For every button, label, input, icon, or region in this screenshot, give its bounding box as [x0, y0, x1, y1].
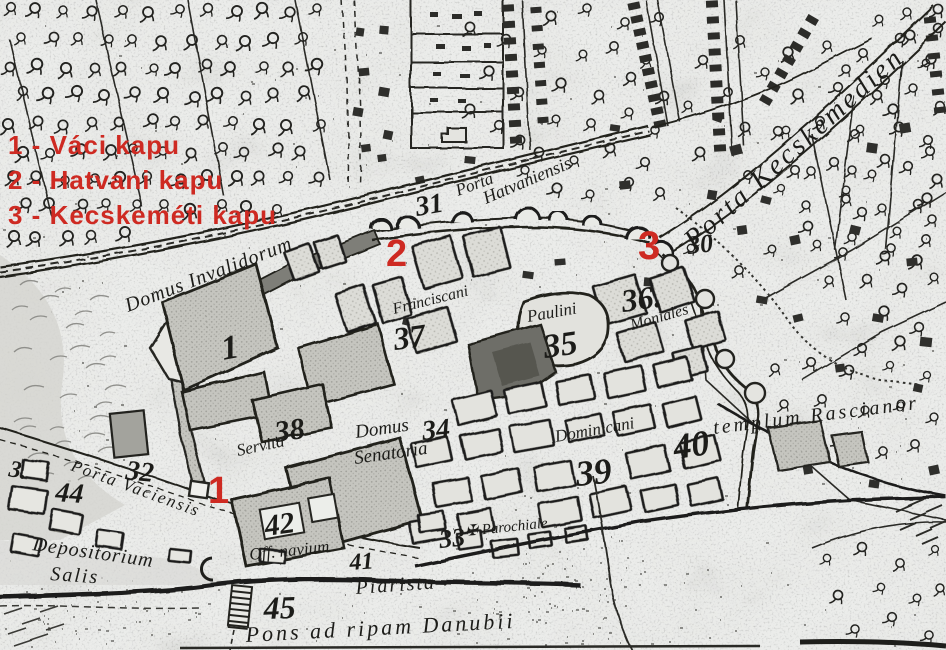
svg-text:2: 2 — [386, 233, 407, 275]
svg-text:42: 42 — [261, 506, 296, 543]
svg-text:1 - Váci kapu: 1 - Váci kapu — [8, 130, 180, 160]
svg-text:2 - Hatvani kapu: 2 - Hatvani kapu — [8, 165, 223, 195]
svg-text:44: 44 — [54, 477, 85, 510]
svg-text:31: 31 — [412, 188, 446, 224]
svg-text:41: 41 — [348, 548, 375, 576]
svg-text:3: 3 — [638, 224, 660, 268]
svg-text:1: 1 — [208, 470, 229, 512]
svg-text:40: 40 — [670, 422, 712, 467]
svg-text:39: 39 — [573, 450, 614, 494]
svg-text:35: 35 — [540, 325, 580, 367]
svg-text:34: 34 — [419, 413, 451, 447]
svg-text:3 - Kecskeméti kapu: 3 - Kecskeméti kapu — [8, 200, 277, 230]
svg-text:30: 30 — [685, 228, 715, 260]
svg-text:Salis: Salis — [50, 563, 100, 588]
svg-text:33: 33 — [437, 522, 467, 554]
